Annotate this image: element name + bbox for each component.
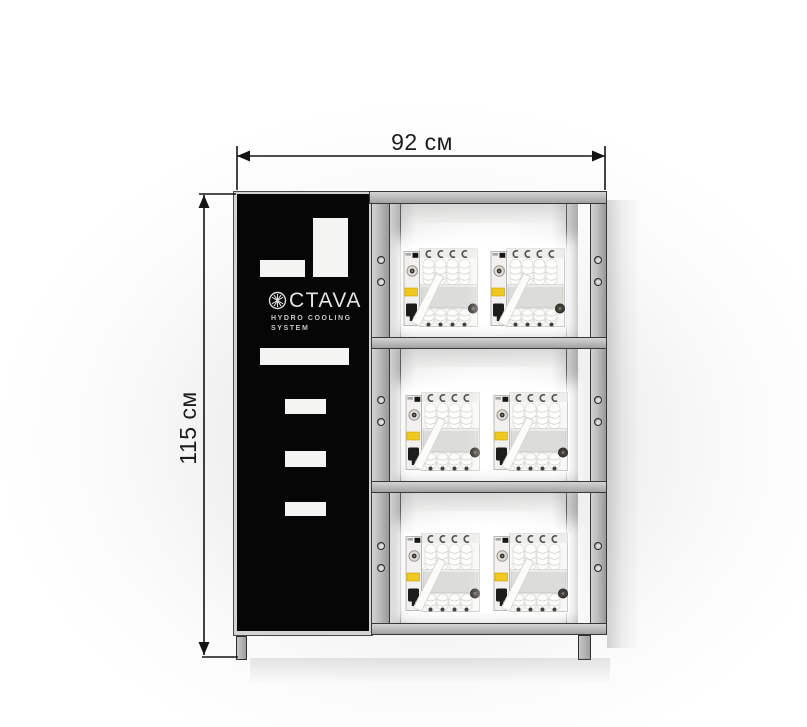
screw-hole	[594, 418, 602, 426]
floor-shadow	[250, 658, 610, 684]
screw-hole	[377, 256, 385, 264]
product-diagram: CTAVA HYDRO COOLING SYSTEM	[0, 0, 807, 727]
screw-hole	[594, 542, 602, 550]
cabinet-leg	[236, 636, 247, 660]
height-dimension-label: 115 см	[175, 343, 201, 513]
rack-leg	[578, 635, 591, 660]
screw-hole	[377, 278, 385, 286]
screw-hole	[377, 542, 385, 550]
screw-hole	[594, 256, 602, 264]
width-dimension-label: 92 см	[337, 129, 507, 155]
screw-hole	[594, 278, 602, 286]
screw-hole	[377, 564, 385, 572]
screw-holes-layer	[0, 0, 807, 727]
screw-hole	[377, 396, 385, 404]
screw-hole	[594, 396, 602, 404]
screw-hole	[594, 564, 602, 572]
screw-hole	[377, 418, 385, 426]
